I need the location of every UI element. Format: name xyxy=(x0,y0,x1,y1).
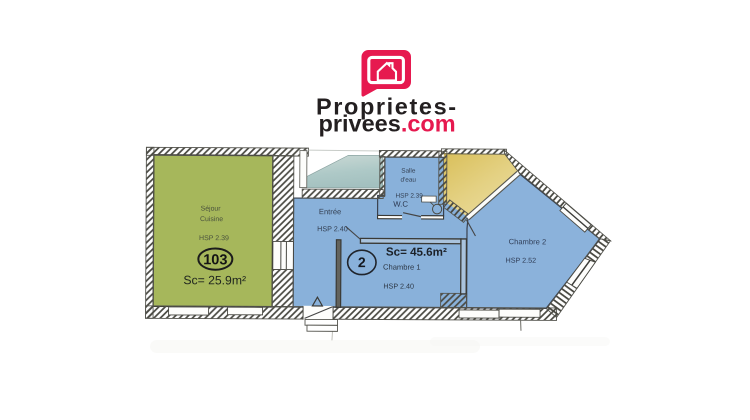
svg-text:Sc= 25.9m²: Sc= 25.9m² xyxy=(183,273,246,287)
svg-text:privees.com: privees.com xyxy=(319,110,456,136)
svg-text:HSP 2.40: HSP 2.40 xyxy=(383,282,414,291)
svg-text:W.C: W.C xyxy=(393,200,408,209)
svg-text:103: 103 xyxy=(203,252,227,268)
svg-text:2: 2 xyxy=(358,254,366,270)
svg-text:Chambre 2: Chambre 2 xyxy=(509,237,547,246)
svg-text:Entrée: Entrée xyxy=(319,207,341,216)
svg-text:HSP 2.40: HSP 2.40 xyxy=(317,224,348,233)
svg-text:Cuisine: Cuisine xyxy=(200,216,223,223)
svg-text:Salle: Salle xyxy=(401,168,416,175)
svg-text:Chambre 1: Chambre 1 xyxy=(383,263,421,272)
svg-text:HSP 2.39: HSP 2.39 xyxy=(199,235,229,242)
svg-text:HSP 2.52: HSP 2.52 xyxy=(505,256,536,265)
svg-text:d'eau: d'eau xyxy=(401,177,417,184)
svg-text:Séjour: Séjour xyxy=(201,206,222,213)
svg-text:Sc= 45.6m²: Sc= 45.6m² xyxy=(386,246,447,259)
